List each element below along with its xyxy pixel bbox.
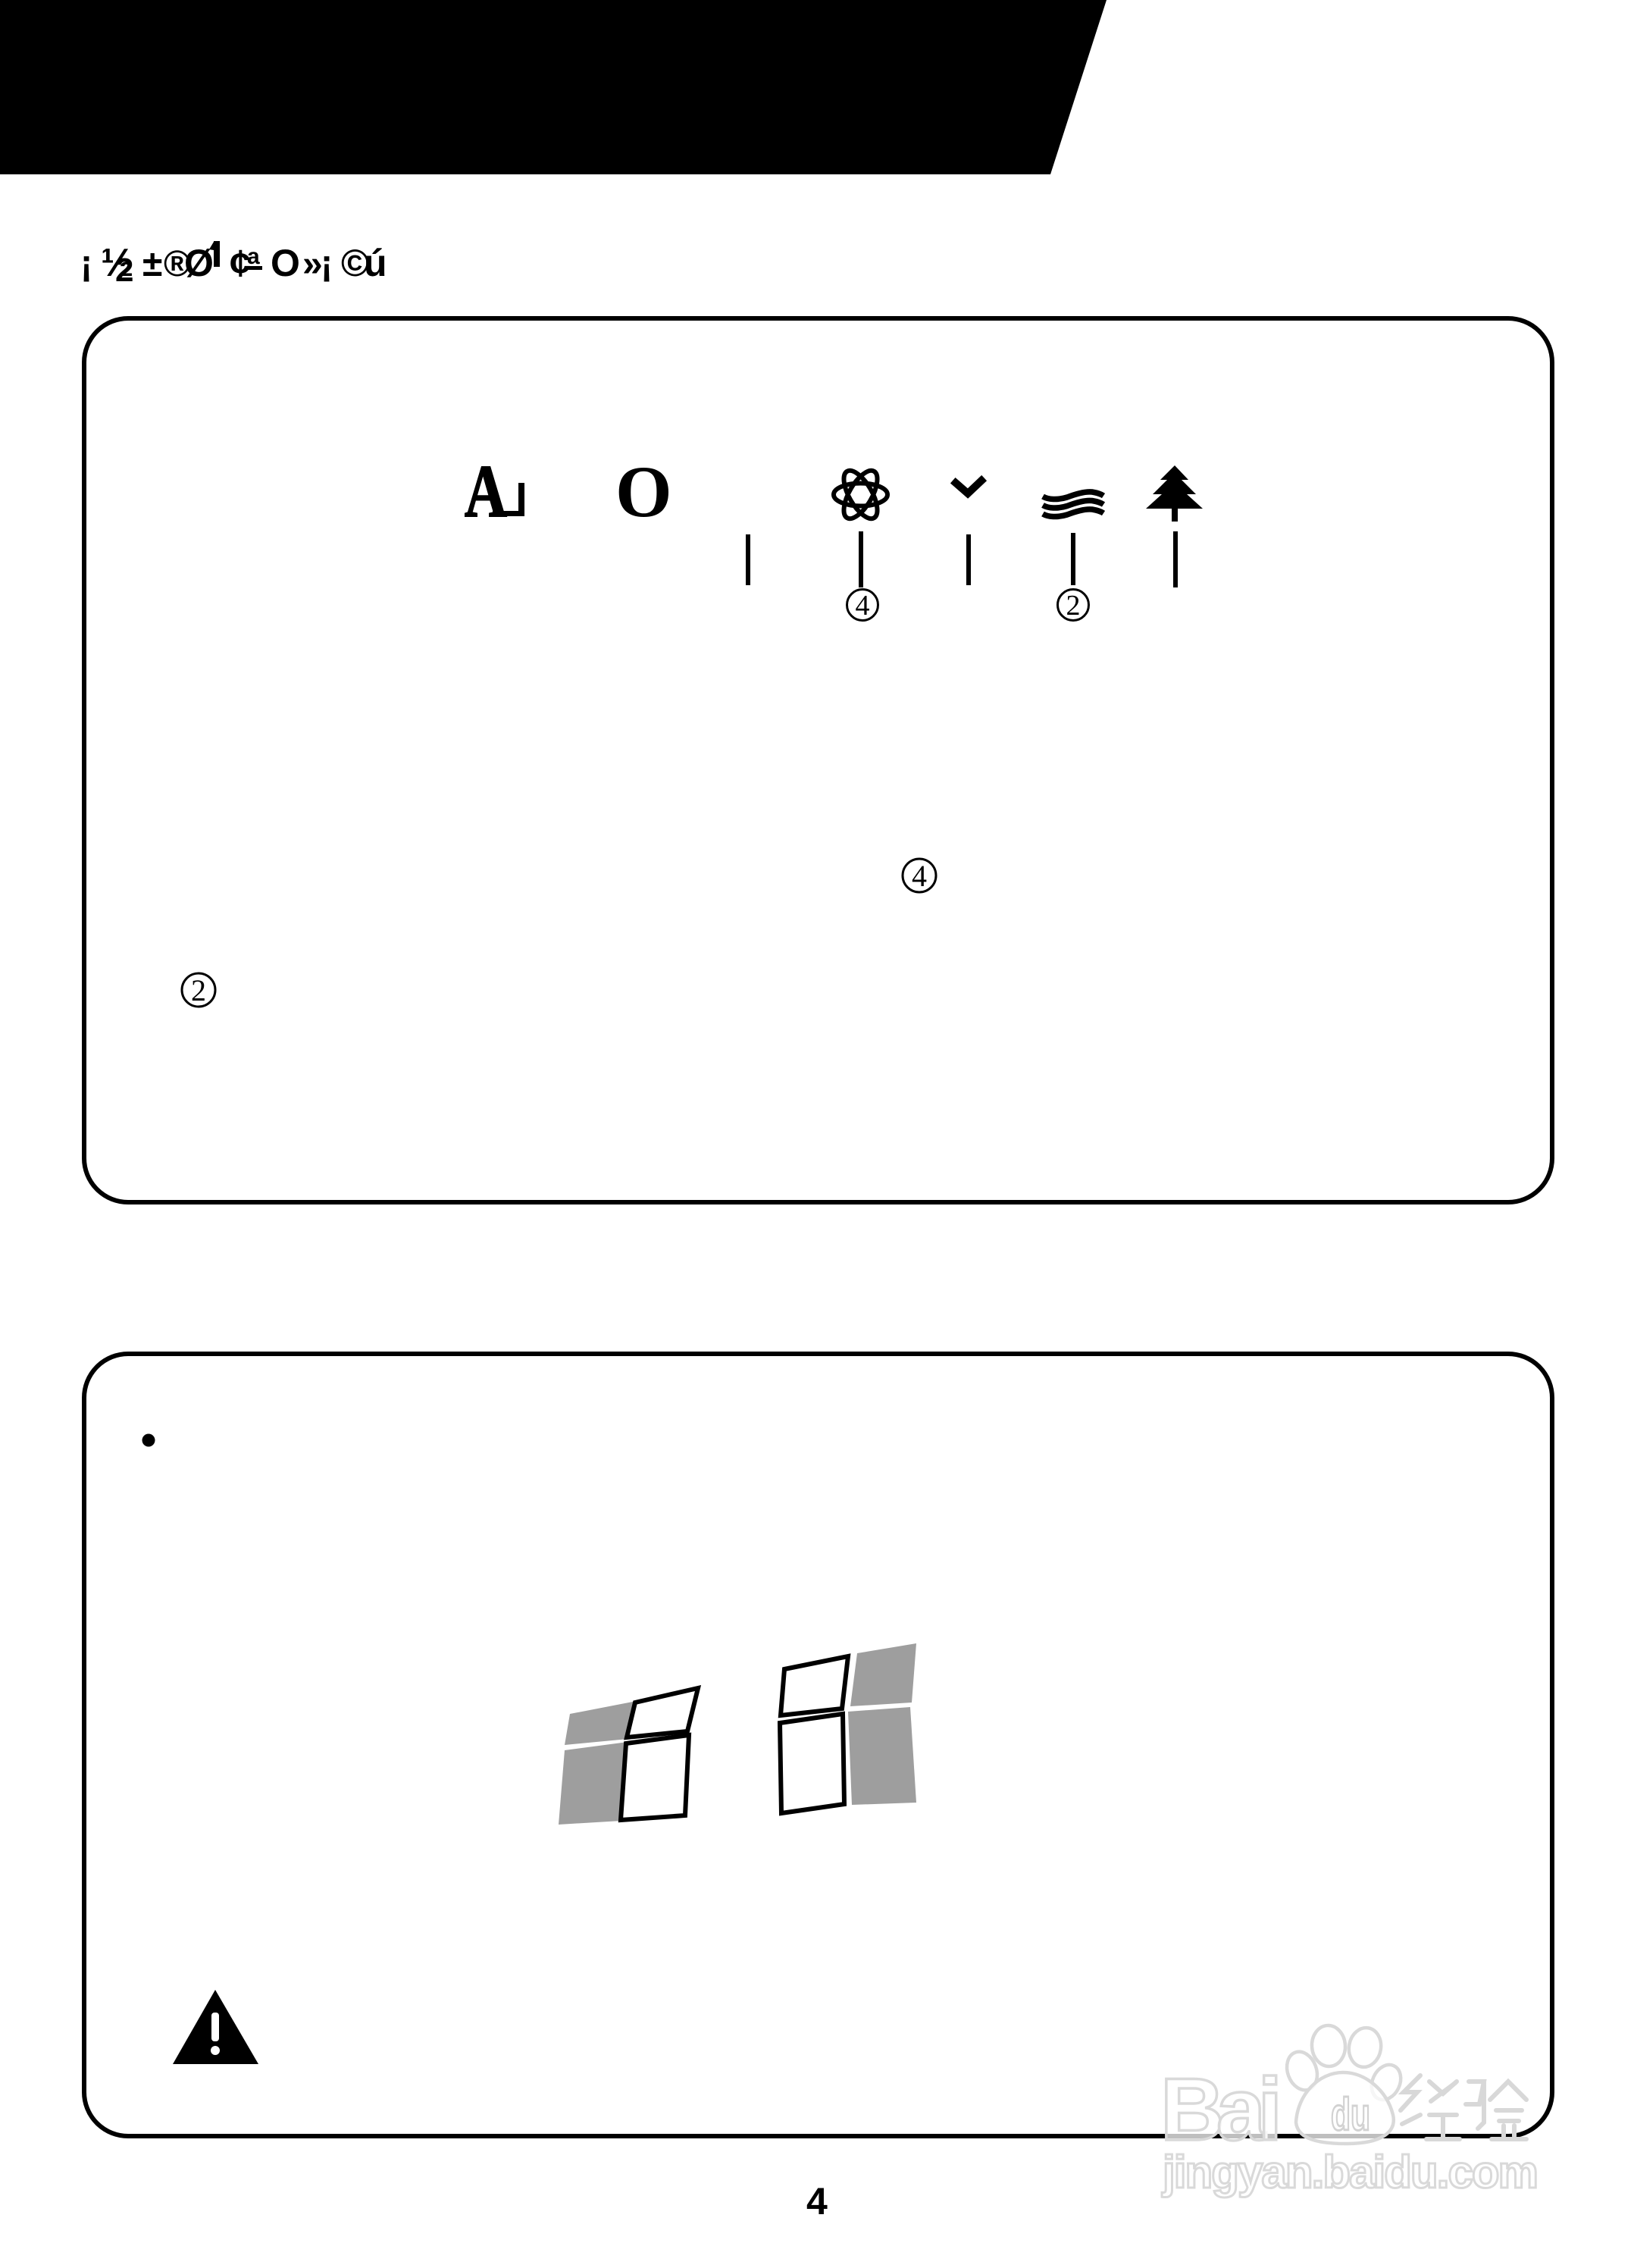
- svg-text:2: 2: [191, 973, 206, 1007]
- svg-text:A: A: [465, 450, 507, 533]
- svg-text:Ø: Ø: [184, 242, 214, 284]
- svg-text:jingyan.baidu.com: jingyan.baidu.com: [1162, 2147, 1539, 2198]
- svg-text:2: 2: [115, 252, 133, 289]
- svg-text:±: ±: [142, 244, 162, 284]
- svg-text:du: du: [1331, 2089, 1370, 2140]
- svg-text:4: 4: [912, 859, 927, 893]
- svg-text:4: 4: [806, 2180, 828, 2223]
- svg-text:¡: ¡: [321, 244, 333, 284]
- svg-text:Bai: Bai: [1160, 2060, 1282, 2159]
- svg-text:»: »: [302, 244, 323, 284]
- svg-text:a: a: [247, 244, 260, 269]
- svg-text:ú: ú: [364, 242, 387, 284]
- svg-text:O: O: [615, 451, 672, 532]
- svg-text:¡: ¡: [80, 244, 92, 284]
- svg-text:4: 4: [856, 590, 870, 622]
- svg-text:O: O: [271, 242, 300, 284]
- svg-text:2: 2: [1066, 590, 1081, 622]
